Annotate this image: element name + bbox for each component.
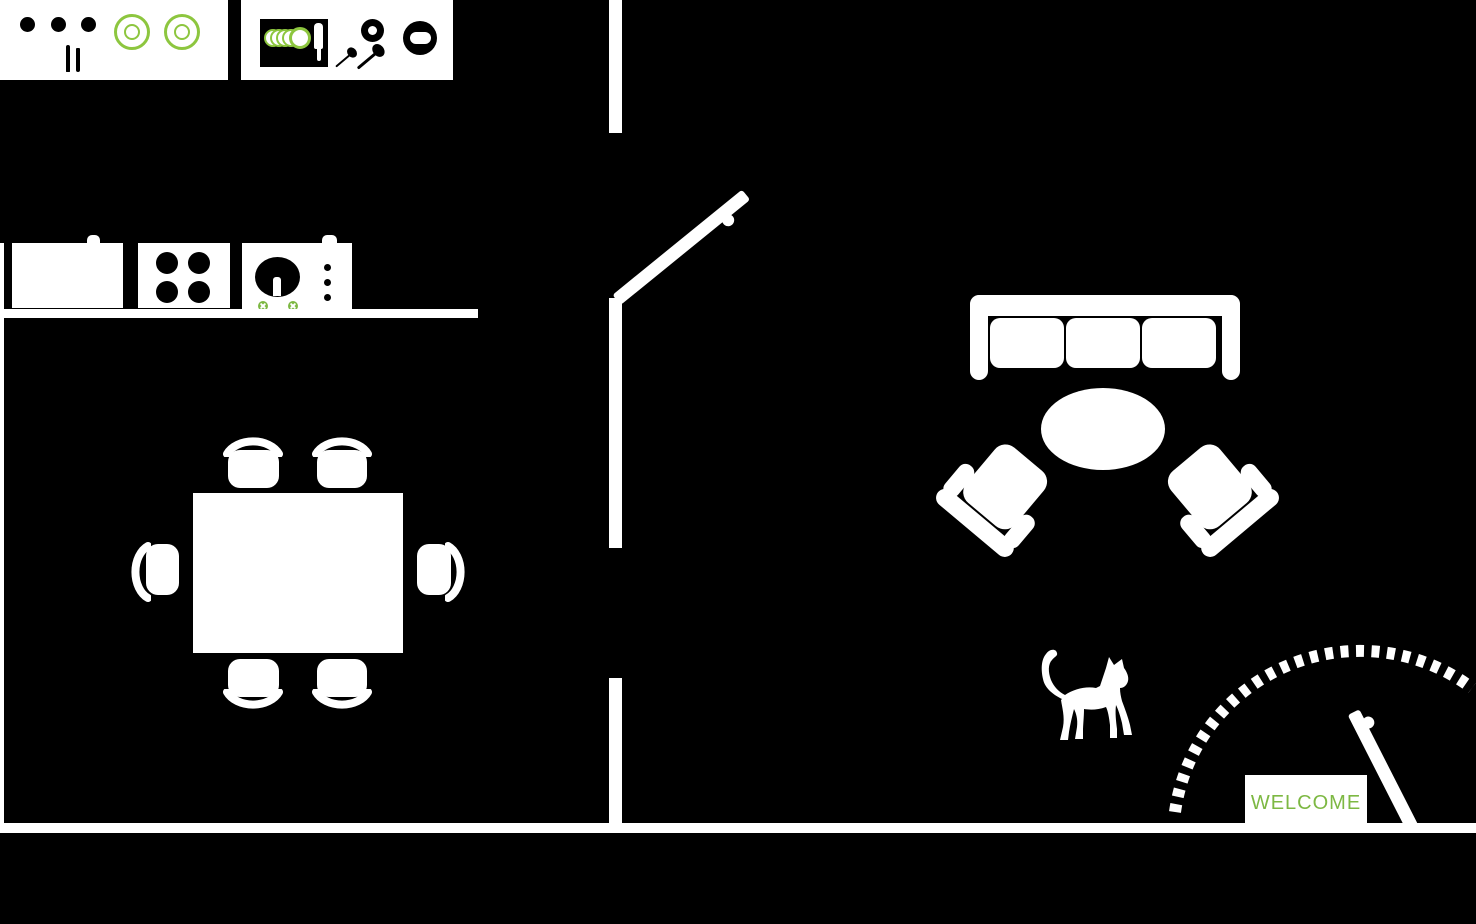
floor-plan: WELCOME [0,0,1476,924]
welcome-mat: WELCOME [1245,775,1367,827]
welcome-mat-label: WELCOME [1251,792,1361,815]
